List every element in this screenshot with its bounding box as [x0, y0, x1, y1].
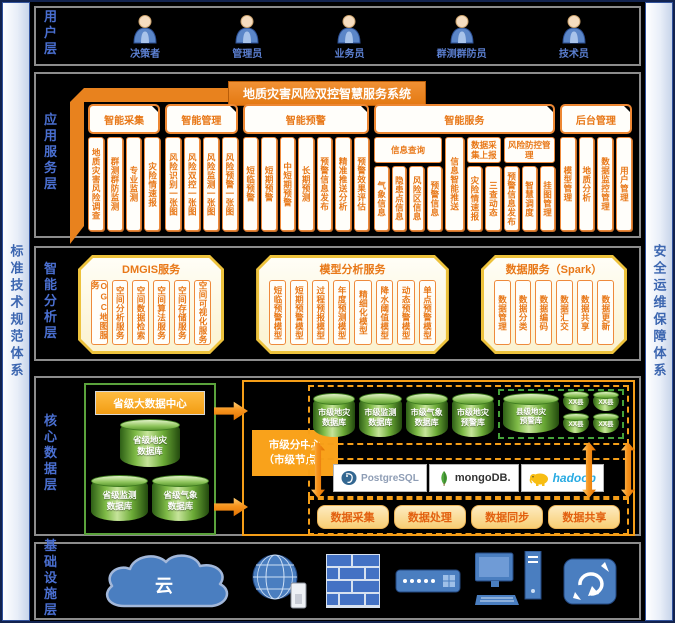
- db-label-line: XX县: [598, 421, 613, 429]
- app-group-header: 智能采集: [88, 104, 160, 134]
- analysis-function-label: 数据分类: [519, 295, 528, 331]
- app-function-label: 风险双控一张图: [188, 153, 197, 216]
- app-function-label: 风险区信息: [413, 176, 422, 221]
- county-small-db-cylinder: XX县: [563, 417, 589, 433]
- analysis-function-label: 降水阈值模型: [380, 286, 389, 340]
- app-subgroup-header: 数据采集上报: [467, 137, 501, 163]
- db-label-line: 预警库: [516, 416, 546, 425]
- app-layer-label: 应用服务层: [43, 113, 56, 198]
- app-function-label: 气象信息: [377, 181, 386, 217]
- user-layer-label: 用户层: [43, 10, 56, 63]
- app-group: 智能预警短临预警短期预警中短期预警长期预测预警信息发布精准推送分析预警效果评估: [243, 104, 369, 231]
- analysis-function: 过程预报模型: [312, 280, 329, 345]
- app-function: 风险区信息: [409, 166, 424, 231]
- app-function-label: 数据监控管理: [601, 157, 610, 211]
- app-function-label: 地质分析: [582, 166, 591, 202]
- analysis-function: 动态预警模型: [397, 280, 414, 345]
- data-layer-label: 核心数据层: [43, 414, 56, 499]
- standards-system-bar: 标准技术规范体系: [2, 2, 30, 621]
- analysis-function: OGC地图服务: [91, 280, 108, 345]
- db-label-line: 数据库: [133, 446, 167, 457]
- user-label: 业务员: [334, 45, 364, 60]
- user-label: 决策者: [130, 45, 160, 60]
- engine-mongodb: mongoDB.: [429, 464, 519, 492]
- cloud-label: 云: [155, 576, 173, 596]
- app-function-label: 智慧调度: [525, 181, 534, 217]
- user-1: 管理员: [232, 14, 262, 60]
- app-function: 灾险情速报: [144, 137, 160, 231]
- engine-postgresql-label: PostgreSQL: [361, 473, 419, 484]
- app-function: 预警信息发布: [504, 166, 519, 231]
- analysis-function-label: 数据共享: [581, 295, 590, 331]
- app-group-header: 后台管理: [560, 104, 632, 134]
- person-icon: [132, 14, 158, 44]
- app-function: 地质分析: [579, 137, 595, 231]
- engine-postgresql: PostgreSQL: [333, 464, 427, 492]
- router-icon: [561, 552, 619, 610]
- analysis-function: 精细化模型: [354, 280, 371, 345]
- app-function-label: 预警信息发布: [507, 172, 516, 226]
- system-title-banner: 地质灾害风险双控智慧服务系统: [228, 81, 426, 106]
- analysis-function: 空间可视化服务: [194, 280, 211, 345]
- analysis-function-label: 年度预测模型: [338, 286, 347, 340]
- infra-icon-row: 云: [88, 548, 627, 614]
- app-function-label: 群测群防监测: [110, 157, 119, 211]
- app-group: 后台管理模型管理地质分析数据监控管理用户管理: [560, 104, 632, 231]
- analysis-box: 数据服务（Spark）数据管理数据分类数据编码数据汇交数据共享数据更新: [481, 255, 627, 354]
- app-function-label: 精准推送分析: [339, 157, 348, 211]
- app-function-label: 用户管理: [620, 166, 629, 202]
- architecture-diagram: 标准技术规范体系 安全运维保障体系 用户层 决策者 管理员 业务员 群测群防员 …: [0, 0, 675, 623]
- infra-layer-panel: 基础设施层 云: [34, 542, 641, 620]
- app-subgroup-header: 风险防控管理: [504, 137, 555, 163]
- app-function: 预警信息: [427, 166, 442, 231]
- analysis-function-label: 空间可视化服务: [199, 281, 208, 344]
- db-label-line: 市级监测: [364, 408, 396, 418]
- db-label-line: 数据库: [163, 501, 197, 512]
- county-db-box: 县级地灾预警库XX县XX县XX县XX县: [498, 389, 624, 439]
- standards-system-label: 标准技术规范体系: [10, 244, 23, 380]
- analysis-function-label: 数据编码: [539, 295, 548, 331]
- app-function-label: 挂图管理: [543, 181, 552, 217]
- app-function: 风险监测一张图: [203, 137, 219, 231]
- analysis-function-label: 短期预警模型: [295, 286, 304, 340]
- person-icon: [449, 14, 475, 44]
- app-group-header: 智能服务: [374, 104, 555, 134]
- db-label-line: 数据库: [364, 418, 396, 428]
- app-function: 三查动态: [485, 166, 500, 231]
- data-function-button: 数据处理: [394, 505, 466, 529]
- db-label-line: 市级气象: [411, 408, 443, 418]
- db-label-line: 县级地灾: [516, 407, 546, 416]
- user-4: 技术员: [559, 14, 589, 60]
- app-function: 信息智能推送: [445, 137, 464, 231]
- app-group-header: 智能预警: [243, 104, 369, 134]
- analysis-function: 降水阈值模型: [376, 280, 393, 345]
- city-db-cylinder: 市级地灾数据库: [313, 399, 355, 437]
- city-db-cylinder: 市级监测数据库: [359, 399, 401, 437]
- app-service-layer-panel: 应用服务层 地质灾害风险双控智慧服务系统 智能采集地质灾害风险调查群测群防监测专…: [34, 72, 641, 238]
- engine-row: PostgreSQL mongoDB. hadoop: [308, 458, 629, 498]
- app-function-label: 长期预测: [302, 166, 311, 202]
- analysis-function-label: 数据更新: [601, 295, 610, 331]
- app-subgroup: 风险防控管理预警信息发布智慧调度挂图管理: [504, 137, 555, 231]
- db-label-line: 市级地灾: [318, 408, 350, 418]
- db-label-line: 预警库: [457, 418, 489, 428]
- county-small-db-cylinder: XX县: [563, 395, 589, 411]
- internet-globe-icon: [248, 551, 312, 611]
- cloud-icon: 云: [96, 550, 234, 612]
- county-small-db-cylinder: XX县: [593, 395, 619, 411]
- user-row: 决策者 管理员 业务员 群测群防员 技术员: [94, 12, 625, 62]
- app-function-label: 预警信息发布: [320, 157, 329, 211]
- data-function-button: 数据采集: [317, 505, 389, 529]
- app-function-label: 隐患点信息: [395, 176, 404, 221]
- app-function-label: 短临预警: [246, 166, 255, 202]
- app-function-label: 三查动态: [489, 181, 498, 217]
- data-layer-panel: 核心数据层 省级大数据中心 省级地灾 数据库 省级监测 数据库 省级气象 数据库: [34, 376, 641, 536]
- app-function-label: 预警信息: [430, 181, 439, 217]
- app-function: 专业监测: [126, 137, 142, 231]
- analysis-function: 年度预测模型: [333, 280, 350, 345]
- analysis-function: 空间数据检索: [132, 280, 149, 345]
- app-function: 长期预测: [298, 137, 314, 231]
- security-ops-bar: 安全运维保障体系: [645, 2, 673, 621]
- app-function: 风险双控一张图: [184, 137, 200, 231]
- province-datacenter-box: 省级大数据中心 省级地灾 数据库 省级监测 数据库 省级气象 数据库: [84, 383, 216, 535]
- county-db-cylinder: 县级地灾预警库: [503, 399, 559, 433]
- analysis-function: 空间分析服务: [112, 280, 129, 345]
- firewall-icon: [326, 554, 380, 608]
- app-subgroup: 信息查询气象信息隐患点信息风险区信息预警信息: [374, 137, 442, 231]
- app-function: 挂图管理: [540, 166, 555, 231]
- analysis-function: 数据共享: [577, 280, 594, 345]
- analysis-function-label: 数据汇交: [560, 295, 569, 331]
- analysis-function: 数据汇交: [556, 280, 573, 345]
- db-label-line: 省级地灾: [133, 435, 167, 446]
- db-label-line: XX县: [568, 399, 583, 407]
- city-db-cylinder: 市级地灾预警库: [452, 399, 494, 437]
- province-db-cylinder: 省级地灾 数据库: [120, 425, 180, 467]
- app-function: 数据监控管理: [597, 137, 613, 231]
- app-function: 风险识别一张图: [165, 137, 181, 231]
- app-function-label: 短期预警: [265, 166, 274, 202]
- province-datacenter-title: 省级大数据中心: [95, 391, 205, 415]
- user-label: 技术员: [559, 45, 589, 60]
- analysis-function-label: OGC地图服务: [91, 281, 108, 344]
- engine-mongodb-label: mongoDB.: [455, 472, 511, 484]
- app-groups: 智能采集地质灾害风险调查群测群防监测专业监测灾险情速报智能管理风险识别一张图风险…: [88, 104, 632, 231]
- analysis-function: 短期预警模型: [290, 280, 307, 345]
- analysis-function-label: 空间数据检索: [136, 286, 145, 340]
- app-group: 智能服务信息查询气象信息隐患点信息风险区信息预警信息信息智能推送数据采集上报灾险…: [374, 104, 555, 231]
- app-function-label: 信息智能推送: [450, 157, 459, 211]
- mongodb-leaf-icon: [437, 470, 451, 486]
- app-function-label: 中短期预警: [283, 162, 292, 207]
- analysis-box: 模型分析服务短临预警模型短期预警模型过程预报模型年度预测模型精细化模型降水阈值模…: [256, 255, 449, 354]
- analysis-box-title: DMGIS服务: [91, 261, 211, 277]
- county-small-db-cylinder: XX县: [593, 417, 619, 433]
- app-function-label: 风险预警一张图: [225, 153, 234, 216]
- app-function-label: 预警效果评估: [357, 157, 366, 211]
- db-label-line: 省级监测: [102, 490, 136, 501]
- workstation-icon: [475, 551, 547, 611]
- county-small-db-grid: XX县XX县XX县XX县: [563, 395, 619, 433]
- person-icon: [234, 14, 260, 44]
- person-icon: [336, 14, 362, 44]
- app-group: 智能管理风险识别一张图风险双控一张图风险监测一张图风险预警一张图: [165, 104, 237, 231]
- security-ops-label: 安全运维保障体系: [653, 244, 666, 380]
- app-function-label: 专业监测: [129, 166, 138, 202]
- data-function-button: 数据同步: [471, 505, 543, 529]
- db-label-line: 市级地灾: [457, 408, 489, 418]
- user-2: 业务员: [334, 14, 364, 60]
- app-function-label: 风险识别一张图: [169, 153, 178, 216]
- app-function-label: 模型管理: [563, 166, 572, 202]
- province-db-cylinder: 省级气象 数据库: [152, 481, 209, 521]
- app-function: 地质灾害风险调查: [88, 137, 104, 231]
- infra-layer-label: 基础设施层: [43, 539, 56, 623]
- app-function: 智慧调度: [522, 166, 537, 231]
- app-function: 中短期预警: [280, 137, 296, 231]
- province-db-cylinder: 省级监测 数据库: [91, 481, 148, 521]
- app-subgroup-header: 信息查询: [374, 137, 442, 163]
- analysis-function-label: 动态预警模型: [402, 286, 411, 340]
- app-function: 预警效果评估: [354, 137, 370, 231]
- app-function: 用户管理: [616, 137, 632, 231]
- app-function: 灾险情速报: [467, 166, 482, 231]
- app-function: 模型管理: [560, 137, 576, 231]
- analysis-function: 数据管理: [494, 280, 511, 345]
- analysis-function-label: 数据管理: [498, 295, 507, 331]
- postgresql-icon: [341, 470, 357, 486]
- app-function: 精准推送分析: [335, 137, 351, 231]
- analysis-function-label: 过程预报模型: [316, 286, 325, 340]
- db-label-line: XX县: [568, 421, 583, 429]
- db-label-line: 数据库: [411, 418, 443, 428]
- app-function: 气象信息: [374, 166, 389, 231]
- analysis-box-title: 数据服务（Spark）: [494, 261, 614, 277]
- analysis-function: 数据分类: [515, 280, 532, 345]
- city-db-cylinder: 市级气象数据库: [406, 399, 448, 437]
- analysis-boxes: DMGIS服务OGC地图服务空间分析服务空间数据检索空间算法服务空间存储服务空间…: [78, 255, 627, 354]
- analysis-function-label: 精细化模型: [359, 290, 368, 335]
- app-function: 预警信息发布: [317, 137, 333, 231]
- app-function-label: 地质灾害风险调查: [92, 148, 101, 220]
- analysis-function-label: 空间存储服务: [178, 286, 187, 340]
- db-label-line: 数据库: [102, 501, 136, 512]
- app-group: 智能采集地质灾害风险调查群测群防监测专业监测灾险情速报: [88, 104, 160, 231]
- user-label: 管理员: [232, 45, 262, 60]
- city-db-row: 市级地灾数据库市级监测数据库市级气象数据库市级地灾预警库县级地灾预警库XX县XX…: [308, 385, 629, 445]
- analysis-function: 数据编码: [535, 280, 552, 345]
- user-layer-panel: 用户层 决策者 管理员 业务员 群测群防员 技术员: [34, 6, 641, 66]
- db-label-line: XX县: [598, 399, 613, 407]
- app-function: 短期预警: [261, 137, 277, 231]
- app-function: 风险预警一张图: [222, 137, 238, 231]
- analysis-function: 数据更新: [597, 280, 614, 345]
- city-node-box: 市级分中心 （市级节点） 市级地灾数据库市级监测数据库市级气象数据库市级地灾预警…: [242, 380, 635, 536]
- analysis-layer-panel: 智能分析层 DMGIS服务OGC地图服务空间分析服务空间数据检索空间算法服务空间…: [34, 246, 641, 361]
- network-switch-icon: [395, 566, 461, 596]
- hadoop-elephant-icon: [529, 470, 549, 486]
- analysis-function-label: 空间分析服务: [116, 286, 125, 340]
- data-function-button: 数据共享: [548, 505, 620, 529]
- analysis-function: 短临预警模型: [269, 280, 286, 345]
- analysis-function: 空间算法服务: [153, 280, 170, 345]
- analysis-function-label: 短临预警模型: [274, 286, 283, 340]
- app-function: 短临预警: [243, 137, 259, 231]
- app-function-label: 风险监测一张图: [207, 153, 216, 216]
- app-function: 隐患点信息: [392, 166, 407, 231]
- analysis-box-title: 模型分析服务: [269, 261, 436, 277]
- db-label-line: 省级气象: [163, 490, 197, 501]
- app-function-label: 灾险情速报: [470, 176, 479, 221]
- data-function-row: 数据采集数据处理数据同步数据共享: [308, 498, 629, 535]
- analysis-function: 空间存储服务: [174, 280, 191, 345]
- app-function: 群测群防监测: [107, 137, 123, 231]
- app-function-label: 灾险情速报: [148, 162, 157, 207]
- analysis-function-label: 空间算法服务: [157, 286, 166, 340]
- analysis-layer-label: 智能分析层: [43, 261, 56, 346]
- person-icon: [561, 14, 587, 44]
- app-subgroup: 数据采集上报灾险情速报三查动态: [467, 137, 501, 231]
- app-group-header: 智能管理: [165, 104, 237, 134]
- analysis-function: 单点预警模型: [419, 280, 436, 345]
- analysis-box: DMGIS服务OGC地图服务空间分析服务空间数据检索空间算法服务空间存储服务空间…: [78, 255, 224, 354]
- analysis-function-label: 单点预警模型: [423, 286, 432, 340]
- user-3: 群测群防员: [437, 14, 487, 60]
- user-0: 决策者: [130, 14, 160, 60]
- user-label: 群测群防员: [437, 45, 487, 60]
- db-label-line: 数据库: [318, 418, 350, 428]
